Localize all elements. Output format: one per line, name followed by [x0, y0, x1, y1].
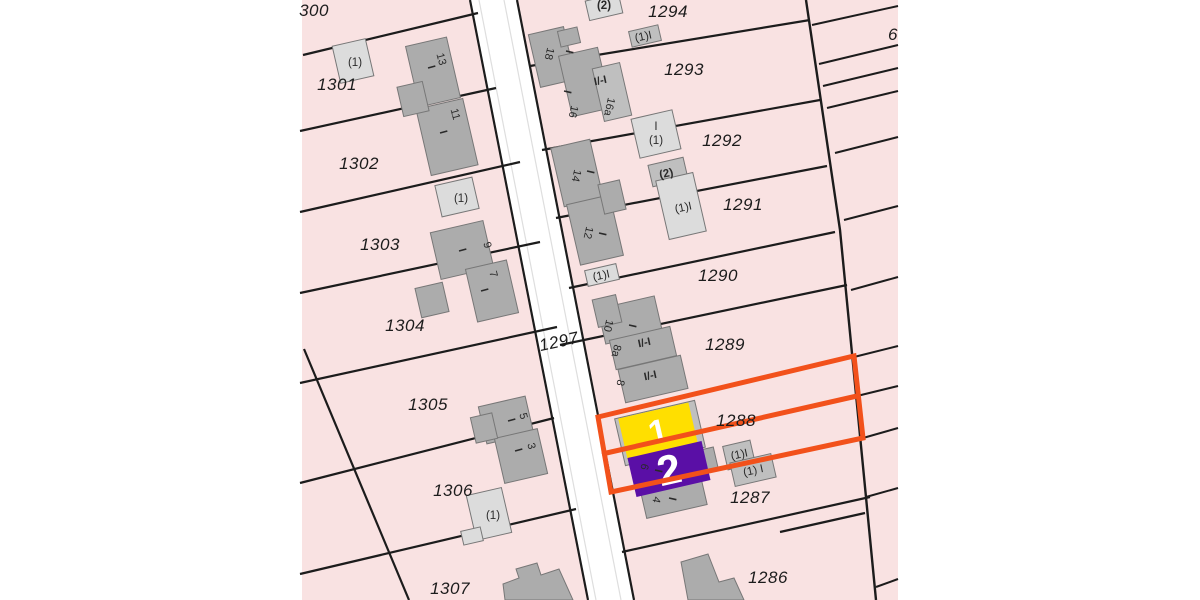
parcel-number-label: 6 — [888, 25, 898, 44]
building — [415, 282, 449, 318]
parcel-number-label: 1292 — [702, 131, 742, 150]
parcel-number-label: 1305 — [408, 395, 448, 414]
parcel-number-label: 1303 — [360, 235, 400, 254]
parcel-number-label: 1288 — [716, 411, 756, 430]
building — [494, 429, 547, 484]
cadastral-map[interactable]: 12 3001301130213031304130513061307129712… — [0, 0, 1200, 600]
parcel-number-label: 1286 — [748, 568, 788, 587]
annex-label: (1) — [348, 57, 362, 69]
parcel-number-label: 1293 — [664, 60, 704, 79]
parcel-number-label: 1294 — [648, 2, 688, 21]
parcel-number-label: 1290 — [698, 266, 738, 285]
parcel-number-label: 1302 — [339, 154, 379, 173]
annex-label: (2) — [597, 0, 611, 12]
annex-label: (1) — [486, 510, 500, 522]
parcel-number-label: 1304 — [385, 316, 425, 335]
parcel-number-label: 1287 — [730, 488, 770, 507]
annex-label: (1) — [649, 135, 663, 147]
map-stage: 12 3001301130213031304130513061307129712… — [0, 0, 1200, 600]
parcel-number-label: 1301 — [317, 75, 357, 94]
parcel-number-label: 1289 — [705, 335, 745, 354]
parcel-number-label: 1307 — [430, 579, 470, 598]
parcel-number-label: 1291 — [723, 195, 763, 214]
annex-label: (1) — [454, 193, 468, 205]
building — [631, 110, 681, 158]
parcel-number-label: 300 — [299, 1, 329, 20]
annex-label: I — [654, 121, 657, 133]
parcel-number-label: 1306 — [433, 481, 473, 500]
